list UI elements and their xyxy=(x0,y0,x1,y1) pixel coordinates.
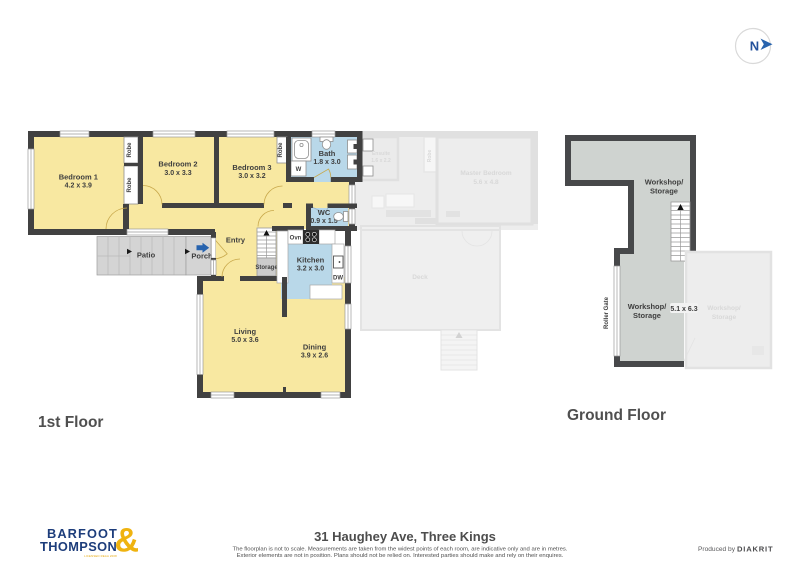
svg-text:Deck: Deck xyxy=(412,274,428,281)
svg-text:N: N xyxy=(750,39,759,54)
svg-text:Master Bedroom: Master Bedroom xyxy=(460,170,512,177)
svg-text:5.0 x 3.6: 5.0 x 3.6 xyxy=(231,337,258,344)
svg-text:Exterior elements are not in p: Exterior elements are not in position. P… xyxy=(237,553,564,559)
svg-text:Dining: Dining xyxy=(303,343,327,352)
svg-text:Robe: Robe xyxy=(127,142,133,158)
svg-text:Workshop/: Workshop/ xyxy=(628,302,668,311)
svg-text:1.8 x 3.0: 1.8 x 3.0 xyxy=(313,159,340,166)
svg-text:Robe: Robe xyxy=(127,177,133,193)
svg-text:Robe: Robe xyxy=(427,150,433,163)
svg-text:Porch: Porch xyxy=(191,252,213,261)
svg-text:Ovn: Ovn xyxy=(290,236,302,242)
svg-text:Bedroom 1: Bedroom 1 xyxy=(59,173,98,182)
svg-text:&: & xyxy=(115,522,140,560)
svg-text:Storage: Storage xyxy=(712,314,737,321)
svg-text:Roller Gate: Roller Gate xyxy=(604,296,610,329)
svg-text:5.1 x 6.3: 5.1 x 6.3 xyxy=(670,306,697,313)
svg-text:0.9 x 1.5: 0.9 x 1.5 xyxy=(310,218,337,225)
svg-text:Bedroom 2: Bedroom 2 xyxy=(158,160,197,169)
svg-text:DW: DW xyxy=(333,276,343,282)
svg-text:3.0 x 3.3: 3.0 x 3.3 xyxy=(164,170,191,177)
svg-text:Ensuite: Ensuite xyxy=(372,151,390,157)
svg-text:3.0 x 3.2: 3.0 x 3.2 xyxy=(238,173,265,180)
svg-text:5.6 x 4.8: 5.6 x 4.8 xyxy=(473,179,499,186)
svg-text:Storage: Storage xyxy=(650,187,678,196)
svg-text:Workshop/: Workshop/ xyxy=(645,178,685,187)
svg-text:Bedroom 3: Bedroom 3 xyxy=(232,163,271,172)
svg-text:1st Floor: 1st Floor xyxy=(38,414,103,431)
svg-text:Robe: Robe xyxy=(278,142,284,158)
svg-text:3.2 x 3.0: 3.2 x 3.0 xyxy=(297,266,324,273)
svg-text:31 Haughey Ave, Three Kings: 31 Haughey Ave, Three Kings xyxy=(314,529,496,544)
svg-text:THOMPSON: THOMPSON xyxy=(40,539,117,554)
svg-text:Bath: Bath xyxy=(319,149,336,158)
svg-text:Storage: Storage xyxy=(633,311,661,320)
svg-text:Produced by: Produced by xyxy=(698,546,736,553)
svg-text:1.6 x 2.2: 1.6 x 2.2 xyxy=(371,158,391,164)
svg-text:DIAKRIT: DIAKRIT xyxy=(737,545,773,554)
svg-text:Patio: Patio xyxy=(137,251,156,260)
svg-text:Living: Living xyxy=(234,327,257,336)
svg-text:4.2 x 3.9: 4.2 x 3.9 xyxy=(65,183,92,190)
svg-text:The floorplan is not to scale.: The floorplan is not to scale. Measureme… xyxy=(233,547,568,553)
svg-text:WC: WC xyxy=(318,208,331,217)
svg-text:LICENSED REAA 2008: LICENSED REAA 2008 xyxy=(84,554,117,558)
svg-text:Entry: Entry xyxy=(226,236,246,245)
svg-text:W: W xyxy=(296,167,302,173)
svg-text:3.9 x 2.6: 3.9 x 2.6 xyxy=(301,353,328,360)
svg-text:Ground Floor: Ground Floor xyxy=(567,407,666,424)
svg-text:Kitchen: Kitchen xyxy=(297,256,325,265)
svg-text:Workshop/: Workshop/ xyxy=(707,305,741,312)
svg-text:Storage: Storage xyxy=(255,265,278,271)
